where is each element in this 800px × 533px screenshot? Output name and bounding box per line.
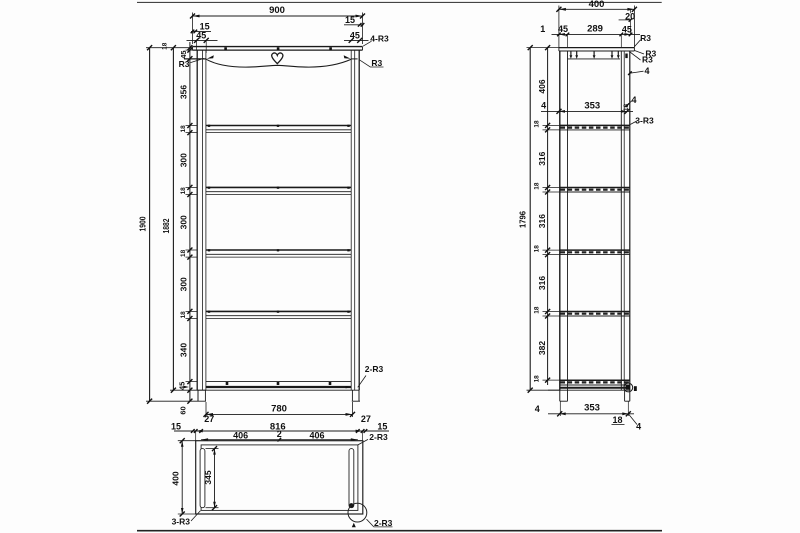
svg-text:15: 15	[345, 15, 355, 25]
svg-text:382: 382	[537, 341, 547, 355]
svg-text:316: 316	[537, 276, 547, 290]
svg-text:45: 45	[179, 50, 188, 58]
svg-text:1: 1	[540, 24, 545, 34]
svg-text:R3: R3	[640, 33, 651, 43]
svg-text:289: 289	[587, 24, 603, 35]
svg-text:400: 400	[171, 471, 181, 485]
svg-text:2: 2	[277, 429, 282, 439]
svg-text:18: 18	[534, 245, 541, 253]
svg-text:353: 353	[584, 101, 600, 112]
svg-text:18: 18	[180, 187, 187, 195]
svg-text:45: 45	[622, 24, 632, 34]
svg-text:300: 300	[178, 277, 188, 291]
svg-text:15: 15	[171, 422, 181, 432]
svg-text:18: 18	[180, 249, 187, 257]
svg-text:18: 18	[612, 415, 622, 425]
svg-text:18: 18	[534, 306, 541, 314]
svg-text:R3: R3	[371, 58, 382, 68]
svg-text:356: 356	[178, 85, 188, 99]
svg-text:18: 18	[180, 311, 187, 319]
svg-text:4: 4	[636, 421, 641, 431]
svg-text:300: 300	[178, 153, 188, 167]
svg-text:340: 340	[178, 343, 188, 357]
svg-text:60: 60	[178, 406, 187, 414]
svg-text:27: 27	[204, 414, 214, 424]
svg-text:20: 20	[625, 11, 635, 21]
svg-text:406: 406	[537, 79, 547, 93]
svg-text:45: 45	[558, 24, 568, 34]
svg-text:400: 400	[589, 0, 605, 10]
svg-text:345: 345	[203, 470, 213, 484]
svg-text:1900: 1900	[139, 216, 148, 231]
svg-text:45: 45	[196, 30, 206, 40]
svg-text:45: 45	[350, 30, 360, 40]
svg-text:316: 316	[537, 214, 547, 228]
svg-text:4: 4	[631, 95, 636, 105]
svg-text:18: 18	[534, 375, 541, 383]
svg-text:4: 4	[535, 404, 540, 414]
svg-text:300: 300	[178, 215, 188, 229]
svg-text:15: 15	[377, 422, 387, 432]
svg-text:3-R3: 3-R3	[172, 516, 191, 526]
svg-text:1882: 1882	[162, 218, 171, 233]
svg-text:R3: R3	[642, 55, 653, 65]
svg-text:1796: 1796	[517, 211, 527, 228]
svg-text:406: 406	[233, 431, 248, 441]
svg-text:18: 18	[623, 104, 630, 112]
svg-text:4: 4	[541, 101, 546, 111]
svg-text:45: 45	[178, 382, 187, 390]
svg-text:780: 780	[271, 403, 287, 414]
svg-text:3-R3: 3-R3	[635, 116, 654, 126]
svg-text:18: 18	[534, 120, 541, 128]
svg-text:2-R3: 2-R3	[365, 364, 384, 374]
svg-text:18: 18	[161, 42, 168, 50]
svg-text:18: 18	[534, 182, 541, 190]
svg-text:406: 406	[309, 431, 324, 441]
svg-text:900: 900	[269, 5, 285, 16]
svg-text:353: 353	[584, 402, 600, 413]
svg-text:27: 27	[361, 414, 371, 424]
svg-text:4-R3: 4-R3	[370, 34, 389, 44]
svg-text:18: 18	[180, 125, 187, 133]
svg-text:4: 4	[644, 66, 649, 76]
svg-text:316: 316	[537, 151, 547, 165]
svg-text:2-R3: 2-R3	[369, 432, 388, 442]
svg-text:2-R3: 2-R3	[374, 518, 393, 528]
